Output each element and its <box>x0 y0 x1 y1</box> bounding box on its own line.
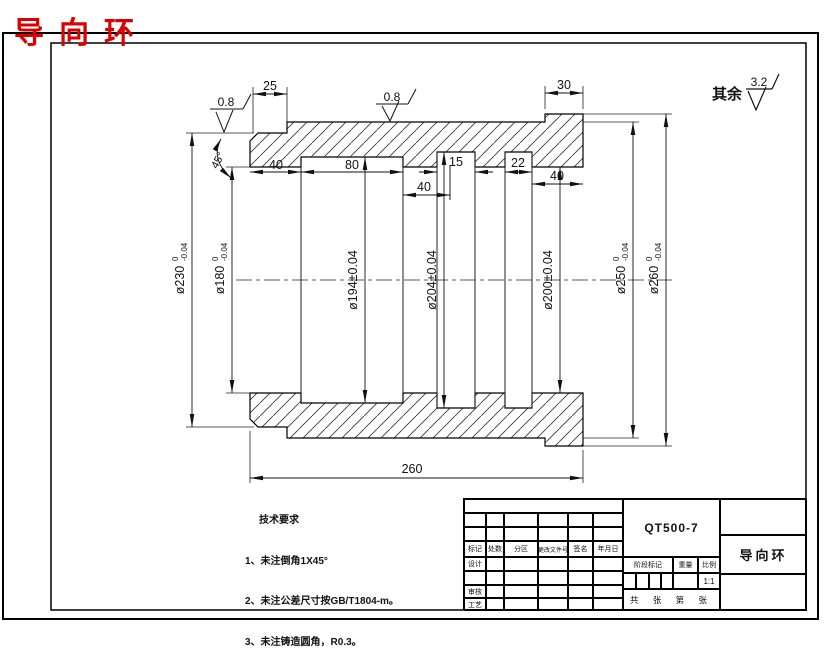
dim-25: 25 <box>263 79 277 93</box>
row-check: 审核 <box>464 585 486 598</box>
chamfer-label: 45° <box>209 150 227 170</box>
surface-note-prefix: 其余 <box>712 85 743 103</box>
header-sign: 签名 <box>568 541 593 557</box>
row-design: 设计 <box>464 557 486 571</box>
drawing-page: 25 30 40 80 15 22 40 40 260 45° ø230 0 -… <box>0 0 830 654</box>
svg-text:0: 0 <box>645 256 654 261</box>
svg-text:0: 0 <box>171 256 180 261</box>
svg-text:-0.04: -0.04 <box>220 242 229 261</box>
header-docno: 更改文件号 <box>538 541 568 557</box>
dim-80: 80 <box>345 158 359 172</box>
revision-row <box>464 499 623 513</box>
dia-194: ø194±0.04 <box>346 250 360 310</box>
dia-200: ø200±0.04 <box>541 250 555 310</box>
dim-30: 30 <box>557 78 571 92</box>
diameter-labels: ø230 0 -0.04 ø180 0 -0.04 ø194±0.04 ø204… <box>171 242 663 310</box>
header-count: 处数 <box>486 541 504 557</box>
dia-180: ø180 <box>213 266 227 295</box>
dia-230: ø230 <box>173 266 187 295</box>
technical-requirements: 技术要求 1、未注倒角1X45° 2、未注公差尺寸按GB/T1804-m。 3、… <box>245 487 399 654</box>
stage-label: 阶段标记 <box>623 557 673 573</box>
scale-label: 比例 <box>698 557 720 573</box>
weight-label: 重量 <box>673 557 698 573</box>
title-block: 标记 处数 分区 更改文件号 签名 年月日 设计 审核 工艺 QT500-7 阶… <box>463 498 806 610</box>
dim-40a: 40 <box>269 158 283 172</box>
svg-text:0: 0 <box>612 256 621 261</box>
svg-text:0.8: 0.8 <box>384 90 401 104</box>
tech-req-item: 3、未注铸造圆角，R0.3。 <box>245 636 399 650</box>
svg-text:0.8: 0.8 <box>218 95 235 109</box>
surface-note-value: 3.2 <box>751 75 768 89</box>
dia-250: ø250 <box>614 266 628 295</box>
dim-15: 15 <box>449 155 463 169</box>
dia-260: ø260 <box>647 266 661 295</box>
dim-22: 22 <box>511 156 525 170</box>
tech-req-title: 技术要求 <box>245 514 399 528</box>
part-name: 导向环 <box>720 535 807 574</box>
svg-text:-0.04: -0.04 <box>180 242 189 261</box>
surface-finish-note: 其余 3.2 <box>712 74 779 110</box>
svg-text:0: 0 <box>211 256 220 261</box>
tech-req-item: 1、未注倒角1X45° <box>245 555 399 569</box>
dia-204: ø204±0.04 <box>425 250 439 310</box>
svg-text:45°: 45° <box>209 150 227 170</box>
header-zone: 分区 <box>504 541 538 557</box>
header-date: 年月日 <box>593 541 623 557</box>
svg-text:-0.04: -0.04 <box>654 242 663 261</box>
dim-260: 260 <box>402 462 423 476</box>
dim-40b: 40 <box>417 180 431 194</box>
scale-value: 1:1 <box>698 573 720 589</box>
header-mark: 标记 <box>464 541 486 557</box>
svg-text:-0.04: -0.04 <box>621 242 630 261</box>
sheet-note: 共 张 第 张 <box>623 589 720 611</box>
dim-40c: 40 <box>550 169 564 183</box>
roughness-mark-1: 0.8 <box>210 94 251 132</box>
page-title: 导向环 <box>14 8 149 52</box>
roughness-mark-2: 0.8 <box>376 89 416 121</box>
material-designation: QT500-7 <box>623 499 720 557</box>
tech-req-item: 2、未注公差尺寸按GB/T1804-m。 <box>245 595 399 609</box>
row-process: 工艺 <box>464 598 486 611</box>
